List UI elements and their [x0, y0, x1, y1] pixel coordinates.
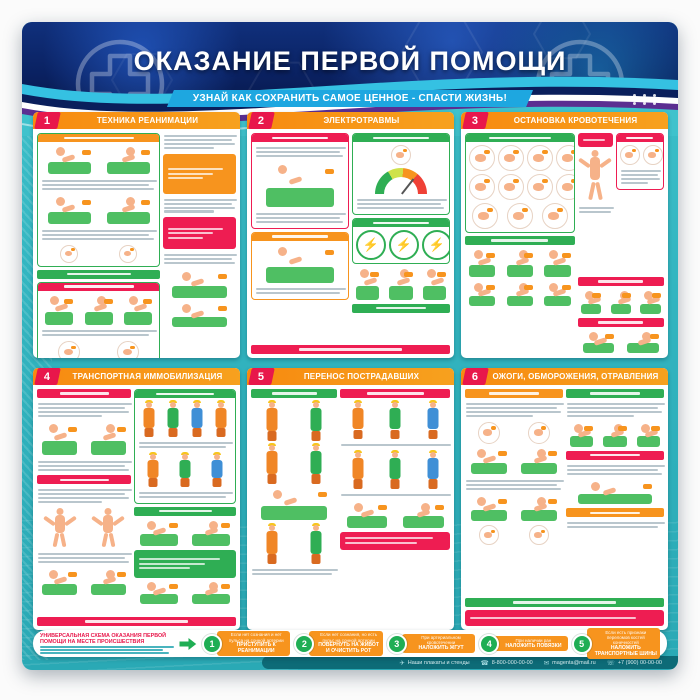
anatomical-figure: [93, 508, 123, 548]
illustration: [516, 494, 564, 522]
section-bar: [465, 598, 664, 607]
panel-body: ⚡⚡⚡: [247, 129, 454, 358]
figure-head-shape: [549, 250, 558, 259]
figure-torso-shape: [216, 408, 227, 428]
figure-head-shape: [129, 296, 138, 305]
text-lines-placeholder: [620, 168, 660, 186]
accent-shape: [643, 484, 652, 489]
text-line-placeholder: [42, 238, 154, 240]
text-line-placeholder: [567, 522, 665, 524]
illustration: [251, 487, 337, 521]
section-box: [37, 282, 160, 359]
figure-torso-shape: [427, 458, 438, 479]
figure-head-shape: [182, 304, 191, 313]
circular-illustration: [527, 145, 553, 171]
illustration-row: [163, 302, 236, 328]
text-line-placeholder: [38, 557, 125, 559]
highlight-note: [578, 133, 613, 147]
text-line-placeholder: [466, 488, 561, 490]
accent-shape: [592, 293, 601, 298]
illustration: [37, 422, 83, 456]
worker-figure: [210, 453, 224, 487]
text-line-placeholder: [38, 411, 129, 413]
illustration: [397, 501, 450, 529]
panels-grid: 1ТЕХНИКА РЕАНИМАЦИИ2ЭЛЕКТРОТРАВМЫ⚡⚡⚡3ОСТ…: [33, 112, 668, 630]
text-line-placeholder: [38, 461, 132, 463]
figure-leg-shape: [53, 532, 60, 546]
accent-shape: [491, 426, 496, 429]
accent-shape: [486, 253, 495, 258]
section-header-bar: [252, 233, 348, 241]
dot-decoration: [653, 94, 656, 97]
footer-item: ✉magenta@mail.ru: [544, 659, 596, 667]
figure-head-shape: [273, 490, 282, 499]
text-line-placeholder: [357, 207, 444, 209]
panel-title: ОСТАНОВКА КРОВОТЕЧЕНИЯ: [487, 112, 664, 129]
text-line-placeholder: [38, 553, 132, 555]
accent-shape: [571, 179, 574, 183]
accent-shape: [484, 179, 490, 183]
panel-header: 1ТЕХНИКА РЕАНИМАЦИИ: [33, 112, 240, 129]
note-text-placeholder: [345, 537, 433, 539]
text-line-placeholder: [466, 480, 564, 482]
figure-arm-shape: [102, 432, 116, 441]
highlight-note: [163, 217, 236, 249]
panel-number-badge: 6: [462, 368, 489, 385]
panel-body: [33, 385, 240, 630]
figure-head-shape: [592, 150, 599, 157]
support-shape: [261, 506, 327, 520]
figure-shape: [483, 429, 492, 436]
circular-illustration: [498, 145, 524, 171]
illustration-row: [41, 195, 156, 225]
text-line-placeholder: [38, 489, 132, 491]
illustration-row: [578, 150, 613, 202]
text-line-placeholder: [40, 649, 163, 651]
support-shape: [266, 188, 334, 206]
text-lines-placeholder: [465, 401, 563, 419]
text-line-placeholder: [42, 188, 154, 190]
scheme-title: УНИВЕРСАЛЬНАЯ СХЕМА ОКАЗАНИЯ ПЕРВОЙ ПОМО…: [40, 633, 174, 645]
accent-shape: [548, 499, 557, 504]
text-line-placeholder: [579, 207, 614, 209]
section-bar: [37, 475, 131, 484]
text-line-placeholder: [164, 147, 213, 149]
support-shape: [507, 296, 533, 306]
accent-shape: [117, 427, 126, 432]
illustration-row: [352, 267, 450, 301]
illustration-row: [37, 568, 131, 596]
section-bar: [37, 617, 236, 626]
panel-title: ЭЛЕКТРОТРАВМЫ: [273, 112, 450, 129]
support-shape: [603, 436, 626, 446]
step-number-badge: 2: [294, 634, 314, 654]
figure-torso-shape: [266, 531, 277, 554]
figure-torso-shape: [352, 408, 363, 429]
accent-shape: [562, 253, 571, 258]
voltage-gauge-illustration: [375, 168, 427, 194]
illustration: [516, 447, 564, 475]
figure-arm-shape: [112, 516, 125, 527]
accent-shape: [650, 334, 659, 339]
support-shape: [347, 516, 388, 527]
illustration-row: [138, 453, 232, 487]
worker-figure: [265, 444, 279, 484]
support-shape: [583, 343, 615, 353]
text-line-placeholder: [139, 442, 233, 444]
figure-head-shape: [427, 269, 436, 278]
text-line-placeholder: [139, 492, 233, 494]
figure-torso-shape: [311, 451, 322, 474]
section-bar: [465, 389, 563, 398]
illustration-row: [465, 525, 563, 545]
figure-torso-shape: [143, 408, 154, 428]
figure-head-shape: [49, 424, 58, 433]
support-shape: [521, 510, 557, 521]
text-lines-placeholder: [37, 459, 131, 473]
figure-legs-shape: [144, 428, 153, 437]
text-lines-placeholder: [566, 401, 664, 419]
text-lines-placeholder: [255, 287, 345, 297]
note-text-placeholder: [168, 228, 223, 230]
text-line-placeholder: [567, 415, 634, 417]
text-lines-placeholder: [340, 492, 450, 498]
illustration-row: [134, 581, 236, 605]
section-box-body: [38, 291, 159, 359]
step-action: ПОВЕРНУТЬ НА ЖИВОТ И ОЧИСТИТЬ РОТ: [317, 643, 379, 654]
panel-title: ПЕРЕНОС ПОСТРАДАВШИХ: [273, 368, 450, 385]
header-text-placeholder: [626, 137, 653, 139]
dot-decoration: [633, 102, 636, 105]
figure-legs-shape: [168, 428, 177, 437]
illustration-row: [138, 401, 232, 437]
phone-icon: ☎: [481, 659, 489, 667]
illustration: [134, 581, 183, 605]
illustration: [86, 568, 132, 596]
section-bar: [37, 270, 160, 279]
accent-shape: [141, 150, 150, 155]
worker-figure: [388, 401, 402, 439]
step-condition: Если есть признаки переломов костей коне…: [595, 630, 657, 646]
worker-figure: [426, 401, 440, 439]
highlight-note: [134, 550, 236, 578]
illustration: [100, 195, 156, 225]
accent-shape: [218, 306, 227, 311]
section-bar: [566, 389, 664, 398]
text-line-placeholder: [42, 184, 149, 186]
illustration: [465, 494, 513, 522]
section-bar: [578, 277, 664, 286]
content-column: ⚡⚡⚡: [352, 133, 450, 342]
accent-shape: [498, 499, 507, 504]
scheme-step: 1Если нет сознания и нет пульса на сонно…: [202, 631, 290, 656]
footer-item-text: magenta@mail.ru: [552, 660, 596, 666]
support-shape: [627, 343, 659, 353]
accent-shape: [652, 293, 661, 298]
figure-shape: [534, 532, 542, 538]
note-text-placeholder: [345, 542, 417, 544]
support-shape: [611, 304, 631, 314]
footer-item-text: 8-800-000-00-00: [492, 660, 533, 666]
panel-number: 4: [44, 371, 50, 383]
content-column: [578, 133, 613, 274]
panel-body: [461, 129, 668, 358]
illustration-row: [620, 145, 660, 165]
illustration: [386, 267, 417, 301]
panel-6: 6ОЖОГИ, ОБМОРОЖЕНИЯ, ОТРАВЛЕНИЯ: [461, 368, 668, 630]
text-line-placeholder: [256, 217, 340, 219]
accent-shape: [169, 523, 178, 528]
figure-head-shape: [147, 521, 156, 530]
circular-illustration: [478, 422, 500, 444]
text-lines-placeholder: [566, 463, 664, 477]
text-line-placeholder: [38, 403, 132, 405]
section-header-bar: [38, 283, 159, 291]
text-line-placeholder: [567, 403, 665, 405]
step-number-badge: 5: [572, 634, 592, 654]
support-shape: [107, 212, 150, 224]
content-column: [134, 389, 236, 614]
text-line-placeholder: [42, 234, 149, 236]
content-columns: [465, 389, 664, 595]
worker-figure: [309, 444, 323, 484]
figure-legs-shape: [193, 428, 202, 437]
panel-number-badge: 4: [34, 368, 61, 385]
text-lines-placeholder: [41, 228, 156, 242]
scheme-step: 3При артериальном кровотеченииНАЛОЖИТЬ Ж…: [387, 634, 475, 654]
figure-legs-shape: [353, 479, 362, 489]
illustration: [120, 294, 157, 326]
support-shape: [570, 436, 593, 446]
panel-body: [247, 385, 454, 630]
illustration-row: [566, 479, 664, 505]
illustration: [81, 294, 118, 326]
illustration: [622, 330, 664, 354]
figure-legs-shape: [428, 430, 437, 440]
footer-item: ✈Наши плакаты и стенды: [399, 659, 469, 667]
illustration: [163, 302, 236, 328]
text-line-placeholder: [164, 203, 231, 205]
section-box-body: [252, 142, 348, 228]
section-box: [37, 133, 160, 267]
scheme-strip: УНИВЕРСАЛЬНАЯ СХЕМА ОКАЗАНИЯ ПЕРВОЙ ПОМО…: [33, 630, 667, 657]
text-line-placeholder: [357, 203, 441, 205]
panel-3: 3ОСТАНОВКА КРОВОТЕЧЕНИЯ: [461, 112, 668, 358]
text-line-placeholder: [38, 465, 125, 467]
illustration-row: [163, 269, 236, 299]
figure-shape: [124, 251, 131, 256]
worker-figure: [309, 524, 323, 564]
note-text-placeholder: [583, 139, 605, 141]
circular-illustration: [498, 174, 524, 200]
panel-number: 2: [258, 115, 264, 127]
text-line-placeholder: [621, 182, 648, 184]
illustration-row: [37, 508, 131, 548]
text-line-placeholder: [38, 497, 129, 499]
worker-figure: [146, 453, 160, 487]
figure-arm-shape: [397, 277, 411, 286]
accent-shape: [541, 426, 546, 429]
worker-figure: [351, 451, 365, 489]
text-line-placeholder: [164, 143, 234, 145]
figure-arm-shape: [289, 176, 303, 185]
support-shape: [172, 286, 227, 298]
figure-shape: [533, 154, 544, 162]
step-number-badge: 3: [387, 634, 407, 654]
figure-head-shape: [360, 269, 369, 278]
illustration-row: [340, 451, 450, 489]
text-line-placeholder: [42, 180, 157, 182]
illustration: [41, 294, 78, 326]
illustration: [255, 244, 345, 284]
text-line-placeholder: [164, 262, 234, 264]
illustration: [163, 269, 236, 299]
section-box: ⚡⚡⚡: [352, 218, 450, 264]
panel-2: 2ЭЛЕКТРОТРАВМЫ⚡⚡⚡: [247, 112, 454, 358]
figure-torso-shape: [390, 458, 401, 479]
section-bar: [566, 451, 664, 460]
subtitle-banner: УЗНАЙ КАК СОХРАНИТЬ САМОЕ ЦЕННОЕ - СПАСТ…: [167, 90, 533, 107]
figure-shape: [648, 152, 656, 158]
figure-legs-shape: [312, 554, 321, 564]
accent-shape: [221, 523, 230, 528]
note-text-placeholder: [139, 563, 205, 565]
text-lines-placeholder: [251, 567, 337, 577]
content-column: [37, 133, 160, 354]
accent-shape: [522, 208, 528, 212]
illustration-row: [465, 447, 563, 475]
accent-shape: [571, 150, 574, 154]
illustration: [340, 501, 393, 529]
illustration: [578, 289, 605, 315]
illustration: [566, 422, 597, 448]
panel-number-badge: 2: [248, 112, 275, 129]
accent-shape: [487, 208, 493, 212]
panel-body: [461, 385, 668, 630]
illustration-row: [469, 174, 571, 200]
worker-figure: [309, 401, 323, 441]
scheme-steps: 1Если нет сознания и нет пульса на сонно…: [202, 628, 660, 658]
section-header-bar: [353, 219, 449, 227]
support-shape: [124, 312, 152, 325]
footer-item-text: Наши плакаты и стенды: [408, 660, 470, 666]
text-line-placeholder: [139, 446, 226, 448]
support-shape: [637, 436, 660, 446]
panel-number-badge: 1: [34, 112, 61, 129]
support-shape: [192, 534, 230, 545]
support-shape: [266, 267, 334, 283]
accent-shape: [618, 426, 627, 431]
accent-shape: [117, 572, 126, 577]
note-text-placeholder: [168, 173, 213, 175]
illustration-row: [465, 248, 575, 278]
section-box: [465, 133, 575, 233]
scheme-step: 4При наличии ранНАЛОЖИТЬ ПОВЯЗКИ: [479, 634, 567, 654]
support-shape: [544, 265, 570, 277]
panel-body: [33, 129, 240, 358]
illustration: [419, 267, 450, 301]
illustration-row: [578, 330, 664, 354]
circular-illustration: [620, 145, 640, 165]
accent-shape: [542, 150, 548, 154]
figure-arm-shape: [43, 516, 56, 527]
figure-legs-shape: [267, 474, 276, 484]
illustration-row: ⚡⚡⚡: [356, 230, 446, 260]
text-lines-placeholder: [138, 490, 232, 500]
section-bar: [340, 389, 450, 398]
illustration: [187, 519, 236, 547]
accent-shape: [104, 299, 113, 304]
figure-shape: [475, 183, 486, 191]
text-lines-placeholder: [163, 252, 236, 266]
illustration: [187, 581, 236, 605]
illustration: [608, 289, 635, 315]
panel-number: 5: [258, 371, 264, 383]
step-action: ПРИСТУПИТЬ К РЕАНИМАЦИИ: [225, 643, 287, 654]
note-text-placeholder: [168, 177, 202, 179]
figure-leg-shape: [595, 182, 603, 200]
illustration-row: [469, 203, 571, 229]
circular-illustration: [529, 525, 549, 545]
figure-torso-shape: [192, 408, 203, 428]
panel-number-badge: 5: [248, 368, 275, 385]
circular-illustration: [556, 174, 575, 200]
illustration-row: [469, 145, 571, 171]
panel-title: ТРАНСПОРТНАЯ ИММОБИЛИЗАЦИЯ: [59, 368, 236, 385]
illustration: [134, 519, 183, 547]
content-column: [578, 133, 664, 354]
figure-torso-shape: [390, 408, 401, 429]
accent-shape: [605, 334, 614, 339]
figure-head-shape: [477, 497, 486, 506]
plane-icon: ✈: [399, 659, 404, 667]
section-bar: [566, 508, 664, 517]
section-box-body: [617, 142, 663, 189]
section-bar: [578, 318, 664, 327]
accent-shape: [325, 250, 334, 255]
text-line-placeholder: [164, 135, 237, 137]
text-line-placeholder: [466, 403, 564, 405]
accent-shape: [486, 285, 495, 290]
illustration: [540, 248, 575, 278]
text-line-placeholder: [164, 258, 231, 260]
worker-figure: [265, 401, 279, 441]
support-shape: [192, 594, 230, 604]
step-condition: При артериальном кровотечении: [410, 635, 472, 645]
worker-figure: [426, 451, 440, 489]
section-box-body: ⚡⚡⚡: [353, 227, 449, 263]
header-text-placeholder: [64, 285, 134, 287]
text-line-placeholder: [139, 496, 226, 498]
text-lines-placeholder: [340, 442, 450, 448]
scheme-text-block: УНИВЕРСАЛЬНАЯ СХЕМА ОКАЗАНИЯ ПЕРВОЙ ПОМО…: [40, 633, 174, 654]
support-shape: [640, 304, 660, 314]
illustration-row: [465, 422, 563, 444]
highlight-note: [465, 610, 664, 626]
accent-shape: [498, 451, 507, 456]
step-text-box: Если нет сознания и нет пульса на сонной…: [217, 631, 290, 656]
dots-cluster-decoration: [633, 94, 658, 105]
figure-leg-shape: [108, 532, 115, 546]
content-column: [163, 133, 236, 354]
figure-arm-shape: [599, 158, 612, 169]
support-shape: [423, 286, 446, 300]
figure-shape: [504, 154, 515, 162]
figure-arm-shape: [363, 277, 377, 286]
section-box-body: [38, 142, 159, 266]
support-shape: [172, 317, 227, 327]
text-line-placeholder: [621, 178, 660, 180]
